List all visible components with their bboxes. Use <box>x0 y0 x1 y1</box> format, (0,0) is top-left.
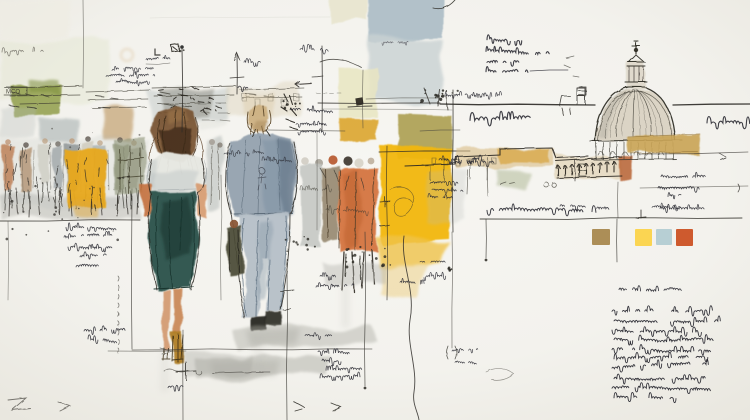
svg-text:MCO: MCO <box>6 90 20 96</box>
